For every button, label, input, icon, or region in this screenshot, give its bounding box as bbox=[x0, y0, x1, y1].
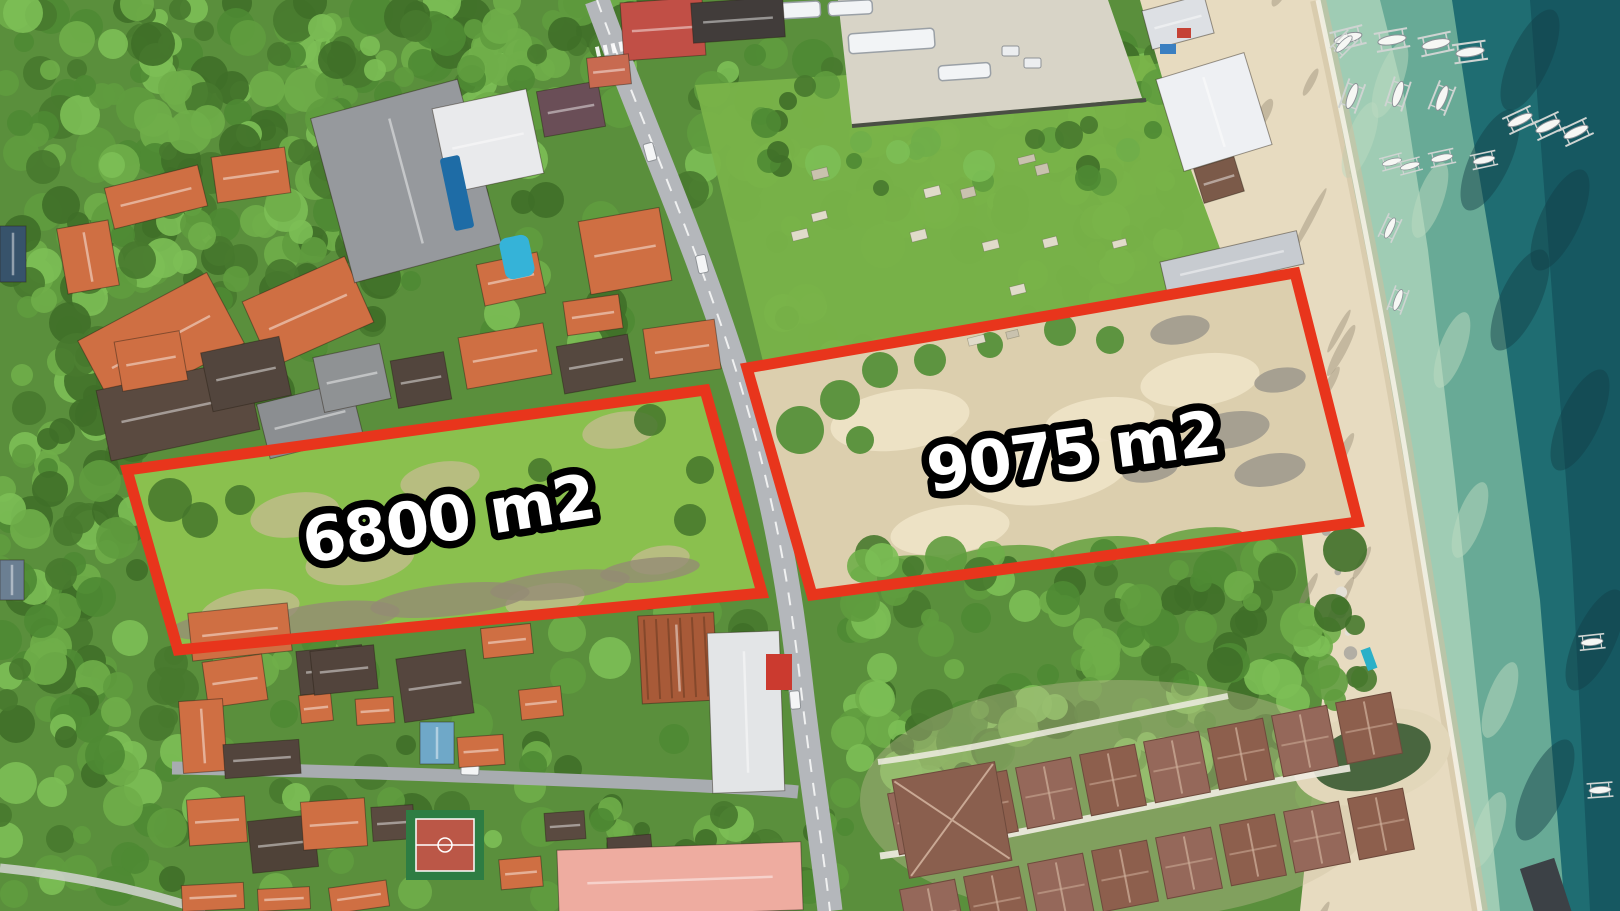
building-roof bbox=[396, 649, 474, 722]
tree bbox=[1046, 581, 1080, 615]
tree bbox=[272, 650, 292, 670]
tree bbox=[194, 21, 214, 41]
tree bbox=[507, 65, 535, 93]
aerial-photo: 6800 m2 9075 m2 bbox=[0, 0, 1620, 911]
tree bbox=[112, 620, 148, 656]
tree bbox=[364, 59, 386, 81]
tree bbox=[873, 180, 889, 196]
tree bbox=[32, 471, 68, 507]
basketball-court bbox=[406, 810, 484, 880]
tree bbox=[328, 848, 354, 874]
tree bbox=[85, 735, 125, 775]
building-roof bbox=[310, 645, 378, 695]
tree bbox=[99, 152, 125, 178]
building-roof bbox=[563, 294, 623, 335]
plot-tree bbox=[674, 504, 706, 536]
tree bbox=[589, 637, 631, 679]
tree bbox=[812, 71, 840, 99]
tree bbox=[12, 391, 46, 425]
red-tarp bbox=[1177, 28, 1191, 38]
building-roof bbox=[457, 734, 505, 767]
tree bbox=[318, 41, 356, 79]
plot-tree bbox=[776, 406, 824, 454]
tree bbox=[918, 621, 954, 657]
building-roof bbox=[557, 842, 803, 911]
tree bbox=[37, 777, 67, 807]
building-roof bbox=[355, 697, 395, 726]
tree bbox=[1243, 593, 1261, 611]
bungalow-roof bbox=[1144, 731, 1211, 803]
tree bbox=[11, 364, 33, 386]
tree bbox=[147, 808, 187, 848]
tree bbox=[1120, 584, 1162, 626]
tree bbox=[1009, 590, 1041, 622]
plot-tree bbox=[225, 485, 255, 515]
tree bbox=[590, 808, 614, 832]
tree bbox=[464, 19, 484, 39]
tree bbox=[1258, 553, 1296, 591]
tree bbox=[103, 786, 143, 826]
tree bbox=[394, 67, 414, 87]
tree bbox=[744, 44, 766, 66]
building-roof bbox=[114, 331, 188, 392]
tree bbox=[74, 75, 96, 97]
building-roof bbox=[211, 147, 291, 203]
tree bbox=[26, 150, 60, 184]
bungalow-roof bbox=[1284, 801, 1351, 873]
building-roof bbox=[181, 882, 244, 911]
tree bbox=[794, 75, 816, 97]
tree bbox=[1073, 618, 1103, 648]
tree bbox=[859, 681, 895, 717]
tree bbox=[1207, 647, 1243, 683]
bungalow-roof bbox=[1156, 827, 1223, 899]
plot-tree bbox=[862, 352, 898, 388]
blue-tarp bbox=[1160, 44, 1176, 54]
tree bbox=[121, 846, 149, 874]
tree bbox=[396, 735, 416, 755]
tree bbox=[867, 653, 897, 683]
bus bbox=[828, 0, 873, 16]
bungalow-roof bbox=[1028, 853, 1095, 911]
tree bbox=[37, 428, 59, 450]
tree bbox=[139, 705, 175, 741]
tree bbox=[1037, 664, 1059, 686]
building-roof bbox=[186, 796, 247, 846]
plot-tree bbox=[634, 404, 666, 436]
building-roof bbox=[390, 352, 452, 409]
tree bbox=[1141, 646, 1171, 676]
tree bbox=[400, 10, 432, 42]
building-roof bbox=[638, 612, 719, 704]
tree bbox=[751, 108, 781, 138]
car bbox=[1002, 46, 1019, 56]
tree bbox=[134, 99, 172, 137]
aerial-photo-stage: 6800 m2 9075 m2 bbox=[0, 0, 1620, 911]
tree bbox=[836, 818, 854, 836]
tree bbox=[911, 127, 941, 157]
tree bbox=[659, 724, 689, 754]
building-roof bbox=[587, 54, 632, 88]
tree bbox=[767, 141, 789, 163]
tree bbox=[1116, 138, 1140, 162]
tree bbox=[267, 42, 291, 66]
tree bbox=[944, 659, 964, 679]
bus bbox=[938, 62, 991, 81]
tree bbox=[830, 778, 860, 808]
tree bbox=[55, 726, 77, 748]
plot-tree bbox=[1096, 326, 1124, 354]
building-roof bbox=[299, 692, 334, 723]
tree bbox=[484, 830, 502, 848]
building-roof bbox=[300, 798, 367, 850]
bungalow-roof bbox=[1208, 718, 1275, 790]
bungalow-rect bbox=[1028, 853, 1095, 911]
tree bbox=[428, 18, 466, 56]
tree bbox=[101, 697, 131, 727]
tree bbox=[96, 517, 138, 559]
tree bbox=[1080, 116, 1098, 134]
tree bbox=[73, 826, 91, 844]
building-roof bbox=[481, 623, 534, 658]
tree bbox=[7, 110, 33, 136]
tree bbox=[1314, 594, 1352, 632]
building-roof bbox=[57, 220, 120, 294]
tree bbox=[886, 140, 910, 164]
building-roof bbox=[544, 811, 586, 842]
tree bbox=[76, 577, 116, 617]
bungalow-roof bbox=[1016, 757, 1083, 829]
tree bbox=[1185, 611, 1217, 643]
plot-tree bbox=[846, 426, 874, 454]
tree bbox=[902, 556, 924, 578]
building-roof bbox=[257, 887, 310, 911]
tree bbox=[548, 614, 586, 652]
tree bbox=[865, 543, 899, 577]
tree bbox=[168, 110, 212, 154]
tree bbox=[1323, 528, 1367, 572]
tree bbox=[1075, 165, 1101, 191]
building-roof bbox=[0, 560, 24, 600]
tree bbox=[963, 150, 995, 182]
tree bbox=[45, 558, 77, 590]
bungalow-roof bbox=[1348, 788, 1415, 860]
tree bbox=[118, 241, 156, 279]
tree bbox=[23, 641, 67, 685]
tree bbox=[249, 71, 285, 107]
tree bbox=[9, 658, 31, 680]
tree bbox=[0, 880, 28, 908]
bungalow-roof bbox=[1092, 840, 1159, 911]
building-roof bbox=[578, 207, 672, 294]
tree bbox=[270, 700, 298, 728]
car bbox=[1024, 58, 1041, 68]
building-roof bbox=[223, 739, 301, 778]
plot-tree bbox=[182, 502, 218, 538]
tree bbox=[53, 516, 83, 546]
plot-tree bbox=[914, 344, 946, 376]
bungalow-roof bbox=[1336, 692, 1403, 764]
tree bbox=[31, 287, 57, 313]
shore-rock bbox=[1344, 646, 1357, 659]
bungalow-roof bbox=[1220, 814, 1287, 886]
tree bbox=[46, 825, 74, 853]
tree bbox=[308, 14, 336, 42]
tree bbox=[1169, 560, 1189, 580]
tree bbox=[528, 182, 564, 218]
tree bbox=[1351, 666, 1377, 692]
tree bbox=[921, 609, 939, 627]
tree bbox=[850, 131, 872, 153]
tree bbox=[126, 559, 148, 581]
tree bbox=[188, 222, 216, 250]
tree bbox=[59, 21, 95, 57]
tree bbox=[14, 32, 34, 52]
building-roof bbox=[179, 699, 228, 774]
bungalow-roof bbox=[1080, 744, 1147, 816]
building-roof bbox=[643, 319, 721, 379]
tree bbox=[779, 92, 797, 110]
building-roof bbox=[420, 722, 454, 764]
tree bbox=[158, 71, 192, 105]
tree bbox=[846, 153, 862, 169]
bungalow-roof bbox=[1272, 705, 1339, 777]
tree bbox=[360, 36, 380, 56]
building-roof bbox=[691, 0, 786, 43]
building-roof bbox=[519, 686, 564, 720]
tree bbox=[24, 604, 58, 638]
tree bbox=[10, 509, 50, 549]
building-roof bbox=[0, 226, 26, 282]
tree bbox=[12, 444, 36, 468]
tree bbox=[1025, 129, 1045, 149]
tree bbox=[398, 875, 432, 909]
tree bbox=[79, 460, 121, 502]
plot-tree bbox=[820, 380, 860, 420]
tree bbox=[1080, 643, 1120, 683]
plot-tree bbox=[686, 456, 714, 484]
tree bbox=[40, 60, 60, 80]
tree bbox=[1144, 121, 1162, 139]
red-shed-roof bbox=[766, 654, 792, 690]
tree bbox=[147, 667, 185, 705]
tree bbox=[527, 44, 547, 64]
tree bbox=[131, 22, 175, 66]
tree bbox=[1312, 665, 1348, 701]
tree bbox=[548, 17, 582, 51]
tree bbox=[401, 271, 421, 291]
tree bbox=[1190, 570, 1212, 592]
tree bbox=[301, 237, 327, 263]
tree bbox=[98, 29, 128, 59]
tree bbox=[230, 20, 266, 56]
tree bbox=[1055, 121, 1083, 149]
tree bbox=[223, 266, 249, 292]
building-roof bbox=[499, 856, 543, 890]
tree bbox=[710, 801, 738, 829]
tree bbox=[961, 603, 991, 633]
tree bbox=[457, 55, 485, 83]
car bbox=[789, 691, 801, 710]
